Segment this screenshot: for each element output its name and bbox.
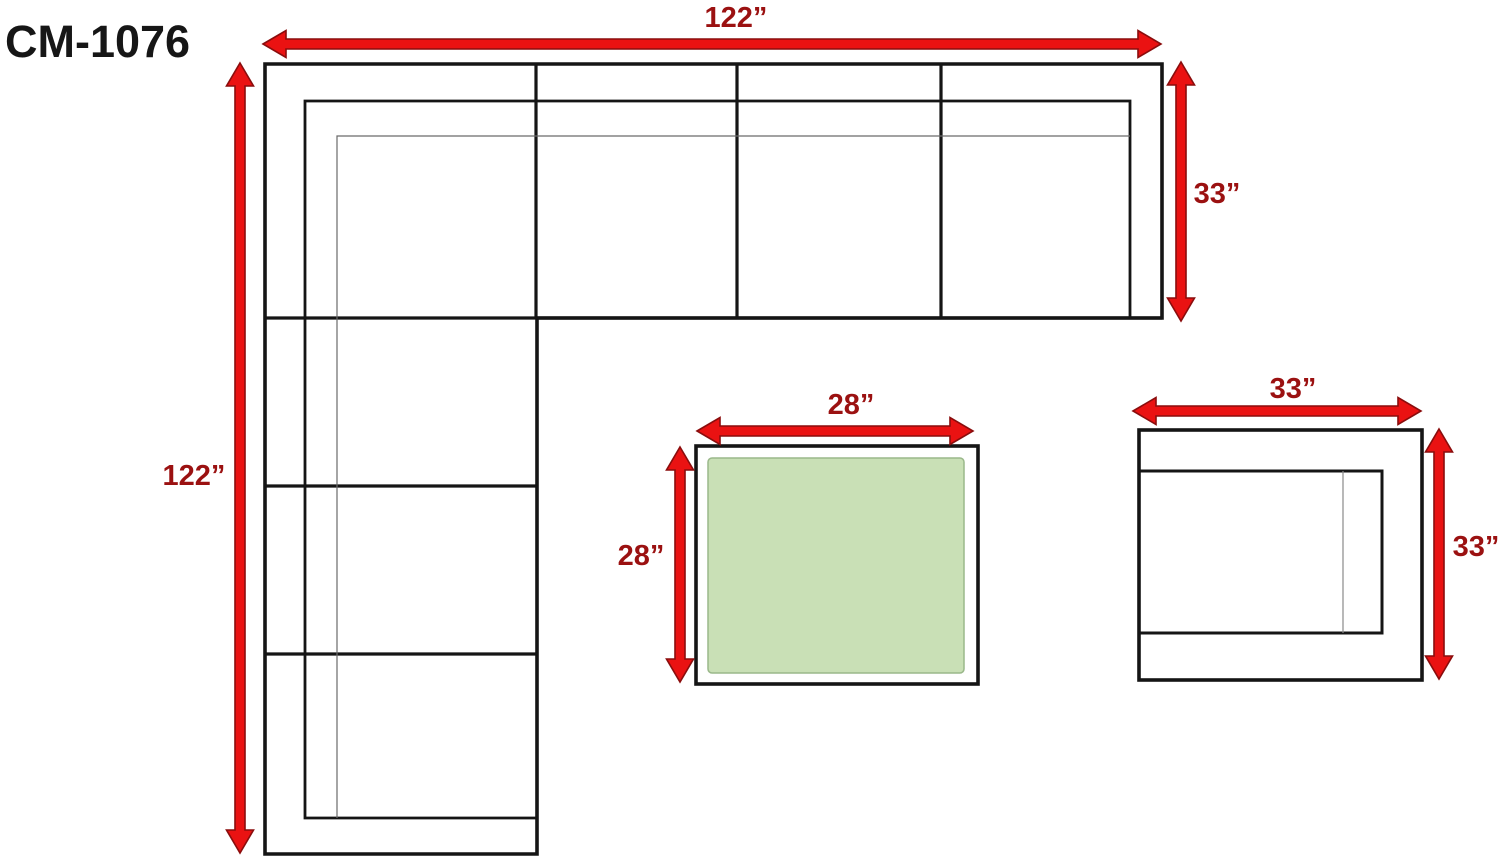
side-depth-arrow	[1426, 429, 1453, 679]
sofa-width-label: 122”	[700, 4, 772, 33]
side-table-outline	[1139, 430, 1422, 680]
sofa-depth-arrow	[1168, 62, 1195, 321]
coffee-table-width-label: 28”	[818, 391, 884, 420]
sofa-height-label: 122”	[162, 462, 226, 491]
sofa-depth-label: 33”	[1192, 180, 1242, 209]
coffee-table-glass-top	[708, 458, 964, 673]
side-table	[1139, 430, 1422, 680]
sectional-layout-drawing	[0, 0, 1500, 860]
side-table-depth-label: 33”	[1451, 533, 1500, 562]
side-table-width-label: 33”	[1262, 375, 1324, 404]
sofa-width-arrow	[263, 31, 1161, 58]
furniture-dimension-diagram: CM-1076	[0, 0, 1500, 860]
sofa-height-arrow	[227, 63, 254, 853]
coffee-width-arrow	[697, 418, 973, 445]
coffee-table-depth-label: 28”	[611, 542, 671, 571]
coffee-table	[696, 446, 978, 684]
